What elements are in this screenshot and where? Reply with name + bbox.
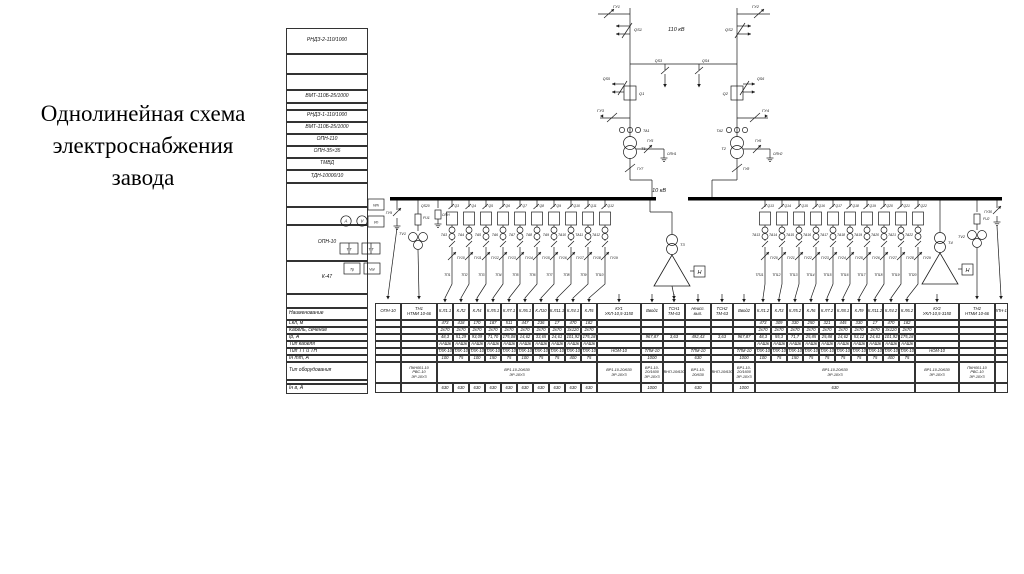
- svg-text:ГУ23: ГУ23: [821, 256, 829, 260]
- svg-text:ТП15: ТП15: [823, 273, 831, 277]
- svg-text:V: V: [361, 219, 365, 224]
- svg-text:Q12: Q12: [608, 204, 615, 208]
- svg-text:Q6: Q6: [506, 204, 511, 208]
- svg-text:ГУ28: ГУ28: [906, 256, 914, 260]
- svg-text:QS6: QS6: [757, 77, 764, 81]
- svg-text:ТА19: ТА19: [854, 233, 862, 237]
- svg-text:QS2: QS2: [725, 27, 734, 32]
- incomer-left: 110 кВГУ1QS1QS5Q1ГУ3ТА1Т1ГУ5ОПН1ГУ7: [597, 4, 685, 197]
- svg-text:ТП14: ТП14: [806, 273, 814, 277]
- svg-text:110 кВ: 110 кВ: [668, 27, 685, 33]
- svg-text:ТА15: ТА15: [786, 233, 794, 237]
- svg-text:ГУ13: ГУ13: [508, 256, 516, 260]
- svg-text:ТП11: ТП11: [755, 273, 763, 277]
- svg-text:ГУ1: ГУ1: [613, 4, 620, 9]
- svg-text:ТА21: ТА21: [888, 233, 896, 237]
- svg-text:Q14: Q14: [785, 204, 792, 208]
- svg-text:ТП4: ТП4: [495, 273, 502, 277]
- svg-text:Q11: Q11: [591, 204, 597, 208]
- svg-text:ТА18: ТА18: [837, 233, 845, 237]
- svg-text:Q4: Q4: [472, 204, 477, 208]
- svg-text:Q15: Q15: [802, 204, 809, 208]
- single-line-schematic: 110 кВГУ1QS1QS5Q1ГУ3ТА1Т1ГУ5ОПН1ГУ7ГУ2QS…: [0, 0, 1024, 574]
- svg-text:ГУ24: ГУ24: [838, 256, 846, 260]
- tsn-right: Т4Н: [922, 201, 973, 285]
- svg-text:Q8: Q8: [540, 204, 545, 208]
- svg-text:ТП7: ТП7: [546, 273, 553, 277]
- svg-text:QS20: QS20: [421, 204, 430, 208]
- svg-text:ГУ16: ГУ16: [559, 256, 567, 260]
- svg-text:ТА6: ТА6: [492, 233, 498, 237]
- svg-text:ТА14: ТА14: [769, 233, 777, 237]
- svg-text:ГУ8: ГУ8: [743, 167, 749, 171]
- svg-text:ТП1: ТП1: [444, 273, 451, 277]
- svg-text:Q7: Q7: [523, 204, 528, 208]
- svg-text:Wh: Wh: [373, 203, 379, 207]
- svg-text:Тр: Тр: [350, 267, 354, 271]
- svg-text:ТА11: ТА11: [575, 233, 583, 237]
- svg-text:ГУ10: ГУ10: [457, 256, 465, 260]
- svg-text:ТП16: ТП16: [840, 273, 848, 277]
- svg-text:ТП18: ТП18: [874, 273, 882, 277]
- svg-text:Q20: Q20: [887, 204, 894, 208]
- svg-text:QS4: QS4: [702, 59, 709, 63]
- svg-text:ГУ27: ГУ27: [889, 256, 897, 260]
- svg-text:ТП2: ТП2: [461, 273, 468, 277]
- svg-text:Q3: Q3: [455, 204, 460, 208]
- svg-text:Q5: Q5: [489, 204, 494, 208]
- svg-text:QS5: QS5: [603, 77, 610, 81]
- svg-text:QS3: QS3: [655, 59, 662, 63]
- svg-text:Vh: Vh: [374, 220, 379, 224]
- svg-text:ГУ11: ГУ11: [474, 256, 482, 260]
- svg-text:ТА16: ТА16: [803, 233, 811, 237]
- svg-text:ТП10: ТП10: [595, 273, 603, 277]
- svg-text:10 кВ: 10 кВ: [652, 188, 666, 194]
- svg-text:Q13: Q13: [768, 204, 775, 208]
- svg-text:A: A: [344, 219, 348, 224]
- svg-text:ГУ20: ГУ20: [770, 256, 778, 260]
- svg-text:ТА4: ТА4: [458, 233, 464, 237]
- svg-text:ТП13: ТП13: [789, 273, 797, 277]
- svg-text:Т4: Т4: [948, 240, 953, 245]
- right-feeder-bays: Q13ТА13ГУ20ТП11Q14ТА14ГУ21ТП12Q15ТА15ГУ2…: [752, 201, 931, 303]
- svg-text:Т1: Т1: [641, 146, 646, 151]
- svg-text:QS1: QS1: [634, 27, 642, 32]
- vt-left: ГУ9QS20FU1ТV1ОПН: [386, 200, 450, 300]
- svg-text:ТА17: ТА17: [820, 233, 828, 237]
- bus-10kv: 10 кВ: [390, 188, 1002, 201]
- svg-text:Q2: Q2: [723, 91, 729, 96]
- svg-text:ГУ2: ГУ2: [752, 4, 760, 9]
- svg-text:ТА9: ТА9: [543, 233, 549, 237]
- svg-text:Var: Var: [369, 267, 376, 271]
- svg-text:Т Т: Т Т: [368, 247, 374, 251]
- svg-text:ГУ21: ГУ21: [787, 256, 795, 260]
- svg-text:ГУ4: ГУ4: [762, 108, 770, 113]
- svg-text:ОПН1: ОПН1: [667, 152, 677, 156]
- svg-text:ГУ15: ГУ15: [542, 256, 550, 260]
- svg-text:FU2: FU2: [983, 217, 990, 221]
- svg-text:ГУ25: ГУ25: [855, 256, 863, 260]
- svg-text:ТП20: ТП20: [908, 273, 916, 277]
- svg-text:Q10: Q10: [574, 204, 581, 208]
- svg-text:ТП17: ТП17: [857, 273, 865, 277]
- svg-text:ТП12: ТП12: [772, 273, 780, 277]
- svg-text:ОПН: ОПН: [442, 213, 450, 217]
- svg-text:ГУ17: ГУ17: [576, 256, 584, 260]
- svg-text:ГУ29: ГУ29: [923, 256, 931, 260]
- svg-text:ТП6: ТП6: [529, 273, 536, 277]
- svg-text:Q1: Q1: [639, 91, 644, 96]
- svg-text:ТА20: ТА20: [871, 233, 879, 237]
- svg-text:ТА7: ТА7: [509, 233, 515, 237]
- svg-text:ГУ14: ГУ14: [525, 256, 533, 260]
- svg-text:ОПН2: ОПН2: [773, 152, 783, 156]
- svg-text:Q22: Q22: [921, 204, 928, 208]
- svg-text:Т3: Т3: [680, 242, 685, 247]
- svg-text:ТА5: ТА5: [475, 233, 481, 237]
- svg-text:Q19: Q19: [870, 204, 877, 208]
- svg-text:ТА13: ТА13: [752, 233, 760, 237]
- svg-text:ТА8: ТА8: [526, 233, 532, 237]
- vt-right: FU2ТV2ГУ30: [958, 201, 1003, 300]
- svg-text:ТП9: ТП9: [580, 273, 587, 277]
- svg-text:ТА2: ТА2: [717, 129, 723, 133]
- svg-text:ТV2: ТV2: [958, 235, 966, 239]
- svg-text:ТП8: ТП8: [563, 273, 570, 277]
- svg-text:Q18: Q18: [853, 204, 860, 208]
- svg-text:ГУ26: ГУ26: [872, 256, 880, 260]
- svg-text:Т2: Т2: [721, 146, 726, 151]
- svg-text:ГУ9: ГУ9: [386, 211, 392, 215]
- svg-text:ГУ19: ГУ19: [610, 256, 618, 260]
- svg-text:Q21: Q21: [904, 204, 911, 208]
- svg-text:ТП19: ТП19: [891, 273, 899, 277]
- svg-text:ТА3: ТА3: [441, 233, 447, 237]
- svg-text:ТА22: ТА22: [905, 233, 913, 237]
- svg-text:Н: Н: [966, 268, 970, 274]
- svg-text:Q16: Q16: [819, 204, 826, 208]
- svg-text:Т Т: Т Т: [346, 247, 352, 251]
- svg-text:ГУ18: ГУ18: [593, 256, 601, 260]
- incomer-right: ГУ2QS2QS6Q2ГУ4ТА2Т2ГУ6ОПН2ГУ8: [712, 4, 783, 197]
- svg-text:ТА1: ТА1: [643, 129, 649, 133]
- svg-text:Q17: Q17: [836, 204, 843, 208]
- svg-text:ГУ5: ГУ5: [647, 139, 653, 143]
- svg-text:ГУ12: ГУ12: [491, 256, 499, 260]
- svg-text:ТП5: ТП5: [512, 273, 519, 277]
- instrument-panel: WhAVVhТ ТТ ТТрVar: [340, 199, 384, 274]
- left-feeder-bays: Q3ТА3ГУ10ТП1Q4ТА4ГУ11ТП2Q5ТА5ГУ12ТП3Q6ТА…: [441, 201, 618, 303]
- tie-section: QS3QS4: [630, 59, 737, 88]
- svg-text:ТV1: ТV1: [399, 232, 406, 236]
- svg-text:ГУ6: ГУ6: [755, 139, 761, 143]
- slide-canvas: Однолинейная схема электроснабжения заво…: [0, 0, 1024, 574]
- svg-text:FU1: FU1: [423, 216, 430, 220]
- tsn-left: Т3Н: [650, 201, 705, 300]
- svg-text:ГУ3: ГУ3: [597, 108, 605, 113]
- svg-text:ТА10: ТА10: [558, 233, 566, 237]
- svg-text:Q9: Q9: [557, 204, 562, 208]
- svg-text:ГУ30: ГУ30: [984, 210, 992, 214]
- svg-text:Н: Н: [698, 270, 702, 276]
- svg-text:ТП3: ТП3: [478, 273, 485, 277]
- svg-text:ТА12: ТА12: [592, 233, 600, 237]
- svg-text:ГУ22: ГУ22: [804, 256, 812, 260]
- svg-text:ГУ7: ГУ7: [637, 167, 644, 171]
